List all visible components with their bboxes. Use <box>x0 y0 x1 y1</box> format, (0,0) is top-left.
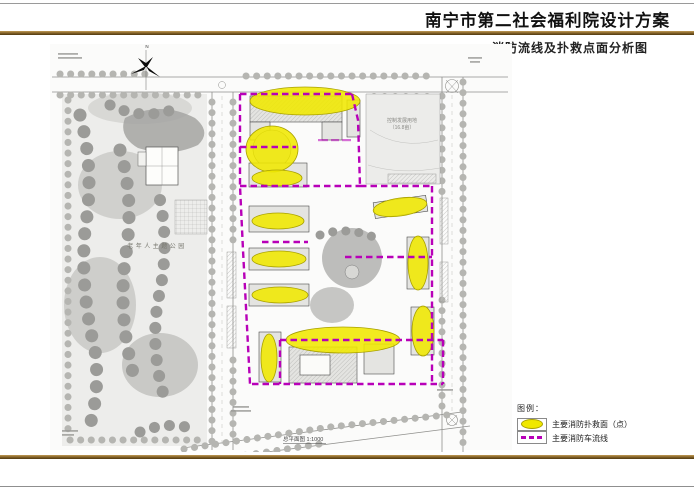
page-title: 南宁市第二社会福利院设计方案 <box>425 7 670 31</box>
site-plan-map: 老年人主题公园 <box>48 40 518 452</box>
sheet: 南宁市第二社会福利院设计方案 消防流线及扑救点面分析图 <box>0 0 694 489</box>
top-hairline <box>0 3 694 4</box>
yellow-ellipse-icon <box>521 419 543 429</box>
legend-title: 图例： <box>517 403 632 414</box>
legend: 图例： 主要消防扑救面（点） 主要消防车流线 <box>517 403 632 445</box>
park-area: 老年人主题公园 <box>62 92 207 446</box>
svg-text:N: N <box>145 44 148 49</box>
magenta-dashed-line-icon <box>521 436 543 439</box>
rescue-area-symbol-cell <box>517 418 547 431</box>
park-label: 老年人主题公园 <box>127 242 187 250</box>
future-land-label-line2: （16.8亩） <box>390 124 415 131</box>
legend-item-label: 主要消防扑救面（点） <box>552 419 632 430</box>
fire-route-symbol-cell <box>517 431 547 444</box>
header-rule <box>0 31 694 35</box>
future-land-label-line1: 控制发展用地 <box>387 117 417 124</box>
bottom-hairline <box>0 486 694 487</box>
future-development-area: 控制发展用地 （16.8亩） <box>366 94 440 184</box>
legend-item-label: 主要消防车流线 <box>552 433 608 444</box>
plan-caption: 总平面图 1:1000 <box>283 435 326 444</box>
footer-rule <box>0 455 694 459</box>
svg-text:总平面图 1:1000: 总平面图 1:1000 <box>283 435 323 443</box>
legend-item-rescue-area: 主要消防扑救面（点） <box>517 417 632 431</box>
legend-item-fire-route: 主要消防车流线 <box>517 431 632 445</box>
